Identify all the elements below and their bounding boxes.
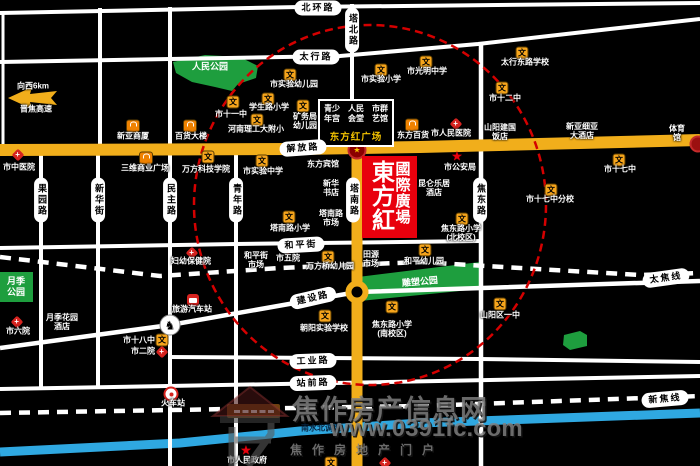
- watermark-tagline: 焦作房地产门户: [290, 441, 444, 458]
- watermark-site-url: www.0391fc.com: [330, 415, 523, 443]
- location-map: 青少 年宫 人民 会堂 市群 艺馆 东方红广场 東方紅 國際廣場 焦作房产信息网…: [0, 0, 700, 466]
